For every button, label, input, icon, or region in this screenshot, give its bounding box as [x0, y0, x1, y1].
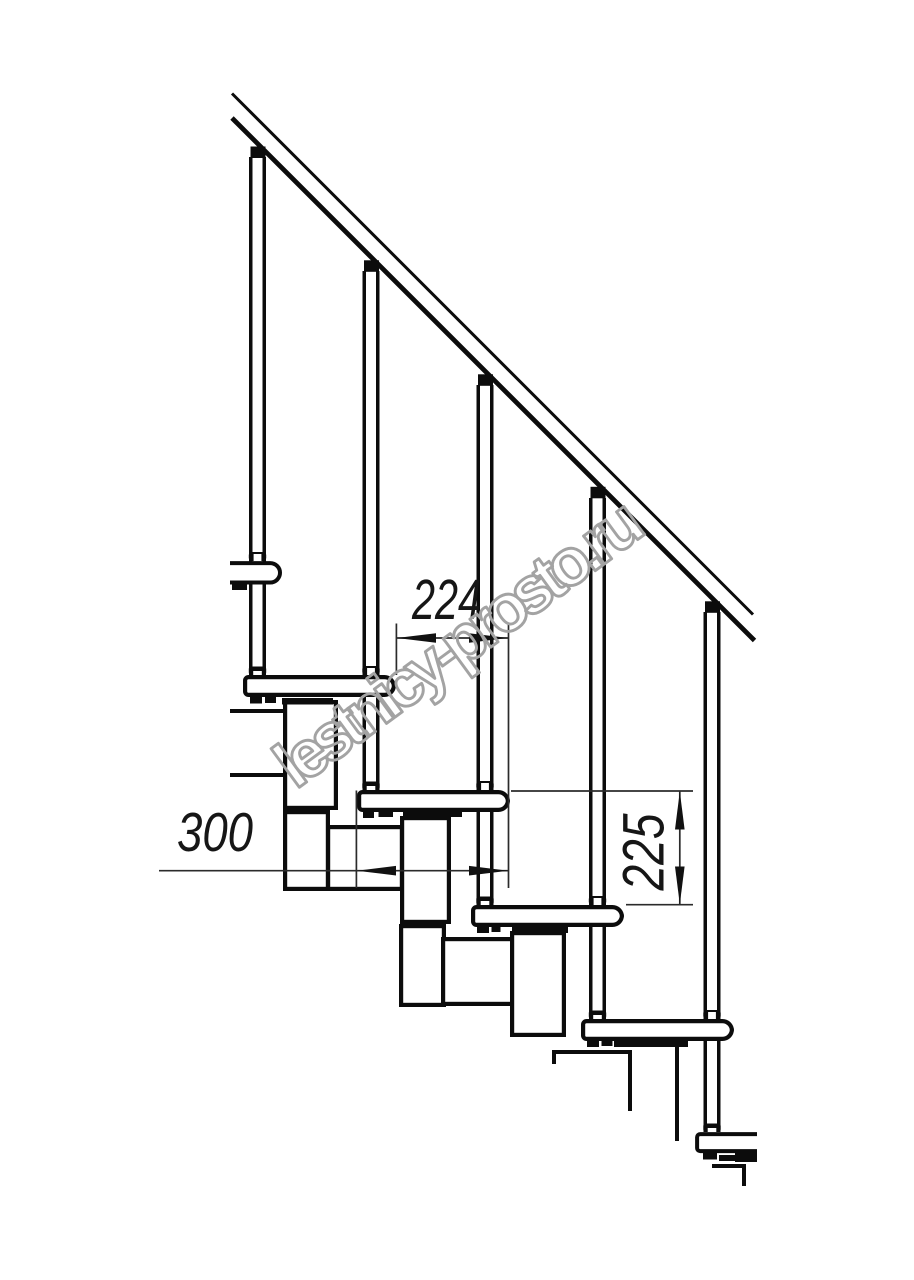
svg-text:300: 300 [177, 801, 253, 863]
svg-text:225: 225 [612, 813, 677, 891]
